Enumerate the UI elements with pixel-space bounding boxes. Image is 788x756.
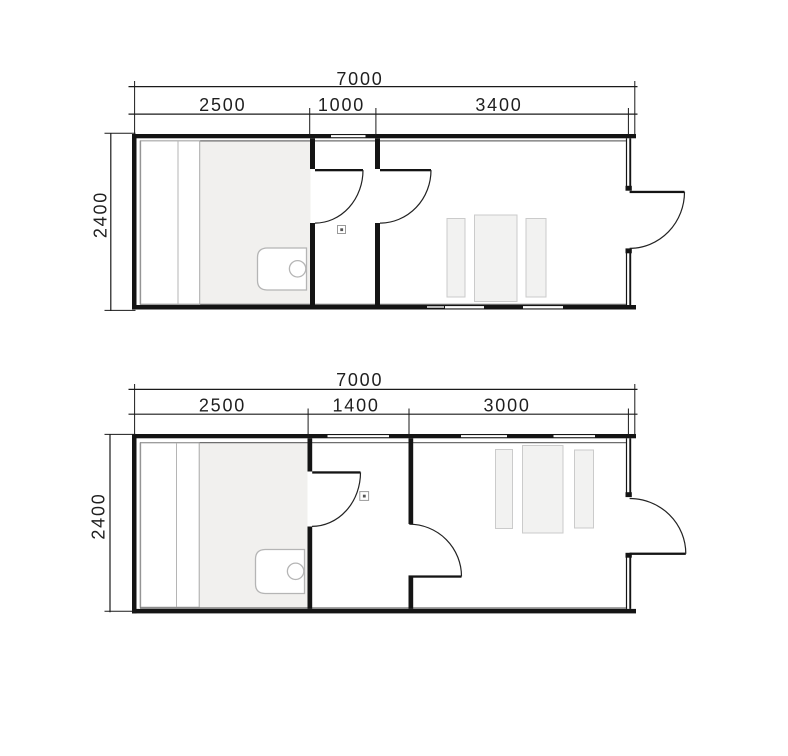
svg-text:3400: 3400 xyxy=(475,95,522,115)
svg-text:7000: 7000 xyxy=(336,370,383,390)
svg-text:3000: 3000 xyxy=(483,395,530,415)
svg-text:2400: 2400 xyxy=(89,492,109,539)
svg-text:2500: 2500 xyxy=(199,95,246,115)
svg-text:2400: 2400 xyxy=(91,191,111,238)
svg-text:2500: 2500 xyxy=(199,395,246,415)
svg-text:1000: 1000 xyxy=(318,95,365,115)
svg-text:1400: 1400 xyxy=(332,395,379,415)
svg-text:7000: 7000 xyxy=(336,69,383,89)
